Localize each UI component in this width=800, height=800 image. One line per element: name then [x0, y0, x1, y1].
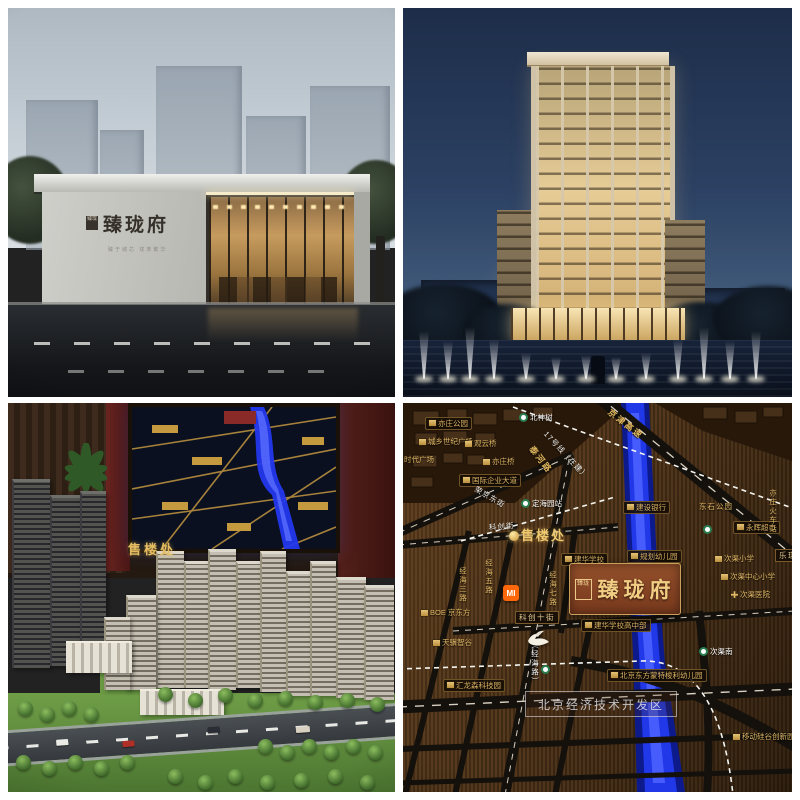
model-tree: [16, 755, 31, 770]
model-tree: [228, 769, 243, 784]
fountain-jet: [465, 327, 475, 379]
curb-line: [8, 302, 395, 305]
map-label: 经海七路: [549, 571, 557, 607]
model-tree: [158, 687, 173, 702]
building-icon: [433, 640, 440, 646]
model-tree: [168, 769, 183, 784]
model-tree: [324, 745, 339, 760]
photo-sales-center[interactable]: 臻珑 臻珑府 臻于城芯 珑萃繁华: [8, 8, 395, 397]
map-label: 亦庄火车站: [769, 489, 777, 534]
model-tree: [278, 691, 293, 706]
metro-station-icon: [521, 499, 530, 508]
map-label-text: 规划幼儿园: [640, 553, 678, 561]
lobby-glass-facade: [206, 192, 360, 310]
map-label: 汇龙森科技园: [443, 679, 505, 692]
development-area-watermark: 北京经济技术开发区: [525, 691, 677, 717]
map-label-text: 移动硅谷创新园: [742, 733, 792, 741]
map-label-text: 泰河路: [528, 445, 554, 475]
model-tree: [42, 761, 57, 776]
fountain-jet: [699, 327, 709, 379]
map-label-text: 时代广场: [404, 456, 434, 464]
hospital-cross-icon: [731, 591, 738, 598]
building-icon: [631, 553, 638, 559]
map-label: 科创十街: [515, 611, 559, 624]
metro-station-icon: [699, 647, 708, 656]
map-label: 次渠小学: [715, 555, 754, 563]
building-icon: [715, 556, 722, 562]
model-tree: [40, 707, 55, 722]
photo-sand-table-model[interactable]: 售楼处: [8, 403, 395, 792]
map-label-text: 北神树: [530, 414, 553, 422]
map-label-text: 次渠南: [710, 648, 733, 656]
sales-office-sign: 售楼处: [128, 539, 176, 558]
photo-location-map[interactable]: 亦庄公园城乡世纪广场时代广场观云桥亦庄桥国际企业大道荣京东街北神树17号线（在建…: [403, 403, 792, 792]
model-tree: [248, 693, 263, 708]
map-label-text: 建华学校高中部: [594, 622, 647, 630]
sales-office-marker-icon: [509, 531, 519, 541]
project-seal-icon: 臻珑: [575, 579, 592, 600]
fountain-jet: [521, 353, 531, 379]
fountain-jet: [673, 339, 683, 379]
map-label: 次渠南: [699, 647, 733, 656]
building-icon: [585, 622, 592, 628]
building-icon: [737, 524, 744, 530]
model-tree: [18, 701, 33, 716]
sales-center-wall: 臻珑 臻珑府 臻于城芯 珑萃繁华: [42, 192, 206, 306]
map-label-text: 经海七路: [549, 571, 557, 607]
fountain-jet: [489, 339, 499, 379]
map-label: 次渠医院: [731, 591, 770, 599]
map-label: 移动硅谷创新园: [733, 733, 792, 741]
map-label-text: 国际企业大道: [472, 477, 517, 485]
brand-seal-icon: 臻珑: [86, 216, 98, 230]
map-label: 经海五路: [485, 559, 493, 595]
model-tree: [84, 707, 99, 722]
map-label: 建华学校高中部: [581, 619, 651, 632]
map-label-text: BOE 京东方: [430, 609, 470, 617]
map-label: 时代广场: [403, 456, 434, 464]
brand-sign: 臻珑 臻珑府 臻于城芯 珑萃繁华: [86, 216, 206, 258]
map-label-text: 汇龙森科技园: [456, 682, 501, 690]
building-icon: [419, 439, 426, 445]
map-label: 乐琪: [775, 549, 792, 562]
xiaomi-logo-icon: MI: [503, 585, 519, 601]
dove-icon: [525, 629, 551, 649]
map-label: 建设银行: [623, 501, 670, 514]
project-marker: 臻珑 臻珑府: [569, 563, 681, 615]
image-collage: 臻珑 臻珑府 臻于城芯 珑萃繁华: [0, 0, 800, 800]
brand-name: 臻珑府: [103, 216, 169, 235]
map-label: 荣京东街: [473, 486, 506, 509]
map-label: 东石公园: [699, 503, 733, 511]
map-label-text: 建华学校: [574, 556, 604, 564]
map-label: 京津高速: [606, 408, 644, 441]
map-label-text: 亦庄桥: [492, 458, 515, 466]
model-tree: [346, 739, 361, 754]
model-tree: [368, 745, 383, 760]
fountain-jets: [403, 8, 792, 397]
building-icon: [565, 556, 572, 562]
road-marking: [34, 342, 374, 345]
sales-center-wall-right: [354, 192, 370, 304]
building-icon: [429, 420, 436, 426]
building-icon: [627, 504, 634, 510]
map-label-text: 观云桥: [474, 440, 497, 448]
map-label-text: 售楼处: [521, 529, 566, 542]
building-icon: [465, 441, 472, 447]
map-label: 亦庄公园: [425, 417, 472, 430]
model-tree: [68, 755, 83, 770]
fountain-jet: [641, 353, 651, 379]
fountain-jet: [751, 331, 761, 379]
building-icon: [483, 459, 490, 465]
lobby-interior: [219, 277, 337, 303]
building-icon: [611, 672, 618, 678]
map-label-text: 次渠医院: [740, 591, 770, 599]
map-label: 亦庄桥: [483, 458, 515, 466]
metro-station-icon: [703, 525, 712, 534]
building-icon: [447, 682, 454, 688]
map-label: 国际企业大道: [459, 474, 521, 487]
map-label: [541, 665, 550, 674]
map-label-text: 京津高速: [606, 408, 644, 441]
model-tree: [62, 701, 77, 716]
map-label: 北神树: [519, 413, 553, 422]
map-label: 经海三路: [459, 567, 467, 603]
building-icon: [721, 574, 728, 580]
model-tree: [94, 761, 109, 776]
model-tree: [280, 745, 295, 760]
light-reflection: [208, 308, 358, 342]
model-tree: [120, 755, 135, 770]
model-tree: [218, 688, 233, 703]
signage-pillar: [376, 236, 385, 310]
map-label-text: 亦庄公园: [438, 420, 468, 428]
map-label: 天骥智谷: [433, 639, 472, 647]
brand-tagline: 臻于城芯 珑萃繁华: [108, 246, 167, 253]
metro-station-icon: [519, 413, 528, 422]
model-tree: [294, 773, 309, 788]
model-tree: [360, 775, 375, 790]
map-label-text: 次渠小学: [724, 555, 754, 563]
model-tree: [258, 739, 273, 754]
model-trees: [8, 403, 395, 792]
map-label-text: 东石公园: [699, 503, 733, 511]
building-icon: [733, 734, 740, 740]
map-label: 北京东方蒙特梭利幼儿园: [607, 669, 707, 682]
map-label: 定海园站: [521, 499, 562, 508]
map-label-text: 次渠中心小学: [730, 573, 775, 581]
fountain-jet: [725, 341, 735, 379]
map-label: [703, 525, 712, 534]
building-icon: [421, 610, 428, 616]
map-label-text: 北京东方蒙特梭利幼儿园: [620, 672, 703, 680]
map-label-text: 科创十街: [519, 614, 555, 622]
map-label: 泰河路: [528, 445, 554, 475]
map-label-text: 乐琪: [779, 552, 792, 560]
road-marking: [68, 370, 348, 373]
model-tree: [308, 695, 323, 710]
map-label-text: 经海三路: [459, 567, 467, 603]
map-label: BOE 京东方: [421, 609, 470, 617]
project-name: 臻珑府: [598, 574, 676, 604]
map-label-text: 天骥智谷: [442, 639, 472, 647]
model-tree: [328, 769, 343, 784]
sales-center-roof: [34, 174, 370, 192]
canopy-light-strip: [206, 192, 354, 195]
map-label: 售楼处: [509, 529, 566, 542]
model-tree: [188, 693, 203, 708]
map-label-text: 建设银行: [636, 504, 666, 512]
map-label: 观云桥: [465, 440, 497, 448]
map-label: 规划幼儿园: [627, 550, 682, 563]
fountain-jet: [443, 341, 453, 379]
map-label-text: 经海五路: [485, 559, 493, 595]
map-label-text: 荣京东街: [473, 486, 506, 509]
fountain-jet: [419, 331, 429, 379]
model-tree: [370, 697, 385, 712]
map-label-text: 定海园站: [532, 500, 562, 508]
ceiling-lights: [213, 205, 349, 209]
model-tree: [302, 739, 317, 754]
model-tree: [198, 775, 213, 790]
building-icon: [463, 477, 470, 483]
photo-residential-tower[interactable]: [403, 8, 792, 397]
metro-station-icon: [541, 665, 550, 674]
map-label-text: 亦庄火车站: [769, 489, 777, 534]
map-label: 次渠中心小学: [721, 573, 775, 581]
model-tree: [260, 775, 275, 790]
model-tree: [340, 693, 355, 708]
